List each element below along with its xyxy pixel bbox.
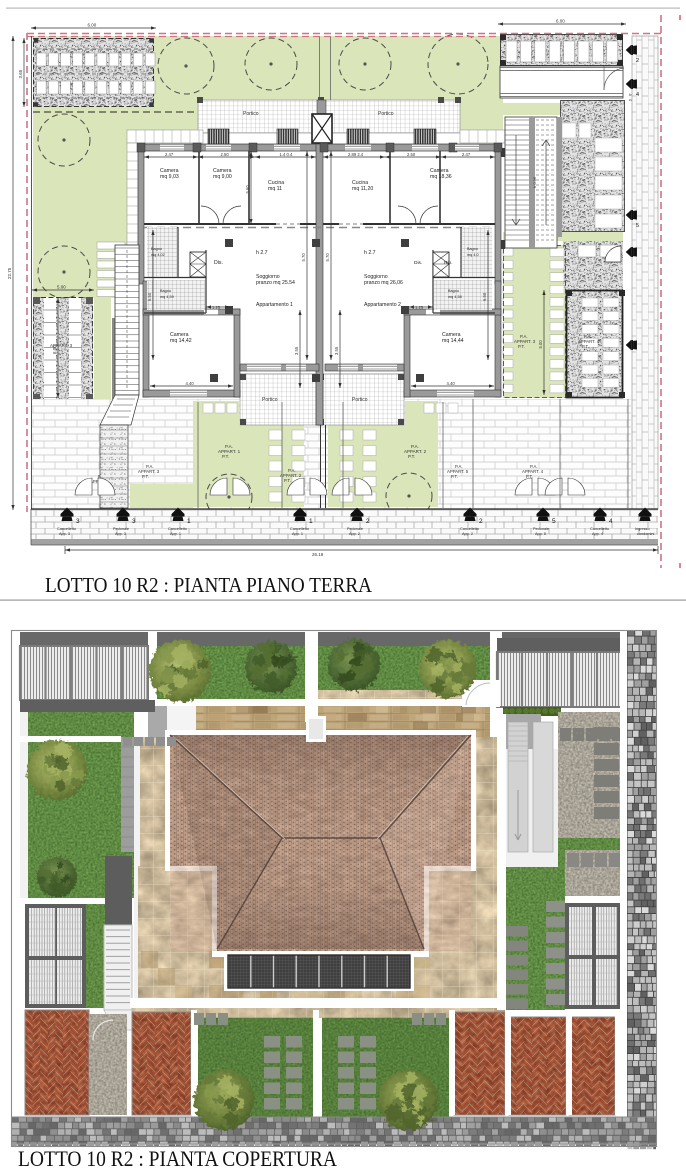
- svg-text:1: 1: [309, 518, 313, 525]
- svg-text:App. 2: App. 2: [462, 532, 473, 536]
- svg-text:Cancelletto: Cancelletto: [57, 527, 76, 531]
- svg-text:2: 2: [636, 58, 639, 64]
- svg-text:4.40: 4.40: [186, 381, 195, 386]
- svg-text:2: 2: [366, 518, 370, 525]
- svg-text:Dis.: Dis.: [414, 260, 422, 266]
- svg-text:LOTTO 10 R2 : PIANTA PIANO T: LOTTO 10 R2 : PIANTA PIANO TERRA: [45, 573, 373, 597]
- svg-text:App. 3: App. 3: [115, 532, 126, 536]
- svg-text:P.T.: P.T.: [451, 474, 458, 479]
- svg-text:mq 4,0: mq 4,0: [467, 253, 479, 257]
- svg-text:22.75: 22.75: [7, 267, 12, 279]
- svg-text:P.T.: P.T.: [582, 344, 589, 349]
- svg-text:Appartamento 2: Appartamento 2: [364, 302, 401, 308]
- svg-text:Bagno: Bagno: [448, 289, 459, 293]
- svg-text:6.00: 6.00: [88, 23, 97, 28]
- svg-text:Pedonale: Pedonale: [113, 527, 129, 531]
- svg-text:2: 2: [479, 518, 483, 525]
- svg-text:P.T.: P.T.: [518, 344, 525, 349]
- svg-text:mq 18,36: mq 18,36: [430, 174, 452, 180]
- svg-text:LOTTO 10 R2 : PIANTA COPERTU: LOTTO 10 R2 : PIANTA COPERTURA: [18, 1146, 337, 1168]
- svg-text:Cancelletto: Cancelletto: [590, 527, 609, 531]
- svg-text:Bagno: Bagno: [467, 247, 478, 251]
- svg-text:mq 14,44: mq 14,44: [442, 338, 464, 344]
- svg-text:P.T.: P.T.: [222, 454, 229, 459]
- svg-text:h 2.7: h 2.7: [364, 250, 376, 256]
- svg-text:App. 1: App. 1: [292, 532, 303, 536]
- svg-text:1.25: 1.25: [415, 305, 424, 310]
- svg-text:Bagno: Bagno: [160, 289, 171, 293]
- svg-text:5.70: 5.70: [325, 253, 330, 262]
- svg-text:3.55: 3.55: [294, 346, 299, 355]
- svg-text:3.65: 3.65: [18, 69, 23, 78]
- svg-text:pranzo mq 25.54: pranzo mq 25.54: [256, 280, 295, 286]
- svg-text:Bagno: Bagno: [151, 247, 162, 251]
- svg-text:Appartamento 1: Appartamento 1: [256, 302, 293, 308]
- svg-text:1: 1: [187, 518, 191, 525]
- svg-text:App. 1: App. 1: [170, 532, 181, 536]
- svg-text:P.T.: P.T.: [408, 454, 415, 459]
- svg-text:2.50: 2.50: [407, 152, 416, 157]
- svg-text:App. 3: App. 3: [59, 532, 70, 536]
- svg-text:2.89 2.4: 2.89 2.4: [348, 152, 364, 157]
- svg-text:6.50: 6.50: [147, 292, 152, 301]
- svg-text:mq 11,20: mq 11,20: [352, 186, 373, 192]
- svg-text:1.25: 1.25: [212, 305, 221, 310]
- svg-text:3: 3: [76, 518, 80, 525]
- svg-text:5.00: 5.00: [538, 340, 543, 349]
- svg-text:Portico: Portico: [243, 111, 259, 117]
- svg-text:P.T.: P.T.: [142, 474, 149, 479]
- svg-text:Portico: Portico: [352, 397, 368, 403]
- svg-text:Pedonale: Pedonale: [347, 527, 363, 531]
- svg-text:6.50: 6.50: [482, 292, 487, 301]
- svg-text:mq 11: mq 11: [268, 186, 282, 192]
- svg-text:6.00: 6.00: [556, 19, 565, 24]
- svg-text:4: 4: [636, 92, 639, 98]
- svg-text:5: 5: [636, 223, 639, 229]
- svg-text:App. 2: App. 2: [349, 532, 360, 536]
- svg-text:Pedonale: Pedonale: [533, 527, 549, 531]
- svg-text:Cancelletto: Cancelletto: [290, 527, 309, 531]
- svg-text:6.00: 6.00: [52, 345, 57, 354]
- svg-text:2.50: 2.50: [221, 152, 230, 157]
- svg-text:App. 5: App. 5: [535, 532, 546, 536]
- svg-text:pranzo mq 26,06: pranzo mq 26,06: [364, 280, 403, 286]
- svg-text:Portico: Portico: [378, 111, 394, 117]
- svg-text:3: 3: [132, 518, 136, 525]
- svg-text:5.00: 5.00: [57, 285, 66, 290]
- svg-text:mq 14,42: mq 14,42: [170, 338, 192, 344]
- svg-text:Ingresso: Ingresso: [635, 527, 650, 531]
- svg-text:mq 4,58: mq 4,58: [448, 295, 462, 299]
- svg-text:5: 5: [552, 518, 556, 525]
- svg-text:5.60: 5.60: [245, 185, 250, 194]
- svg-text:mq 9,00: mq 9,00: [213, 174, 232, 180]
- svg-text:2.47: 2.47: [165, 152, 174, 157]
- svg-text:Portico: Portico: [262, 397, 278, 403]
- svg-text:Dis.: Dis.: [214, 260, 223, 266]
- svg-text:P.T.: P.T.: [284, 478, 291, 483]
- svg-text:mq 4,59: mq 4,59: [160, 295, 174, 299]
- svg-text:5.70: 5.70: [301, 253, 306, 262]
- svg-text:App. 4: App. 4: [592, 532, 603, 536]
- svg-text:4.40: 4.40: [447, 381, 456, 386]
- svg-text:3.55: 3.55: [334, 346, 339, 355]
- svg-text:h 2.7: h 2.7: [256, 250, 268, 256]
- svg-text:h 0.36: h 0.36: [532, 176, 537, 188]
- svg-text:Cancelletto: Cancelletto: [168, 527, 187, 531]
- svg-text:mq 9,03: mq 9,03: [160, 174, 179, 180]
- svg-text:1.4 0.4: 1.4 0.4: [280, 152, 293, 157]
- svg-text:condomini: condomini: [637, 532, 654, 536]
- svg-text:Cancelletto: Cancelletto: [460, 527, 479, 531]
- svg-text:26.19: 26.19: [312, 552, 324, 557]
- svg-text:Rip.: Rip.: [444, 260, 453, 266]
- svg-text:2.47: 2.47: [462, 152, 471, 157]
- svg-text:4: 4: [609, 518, 613, 525]
